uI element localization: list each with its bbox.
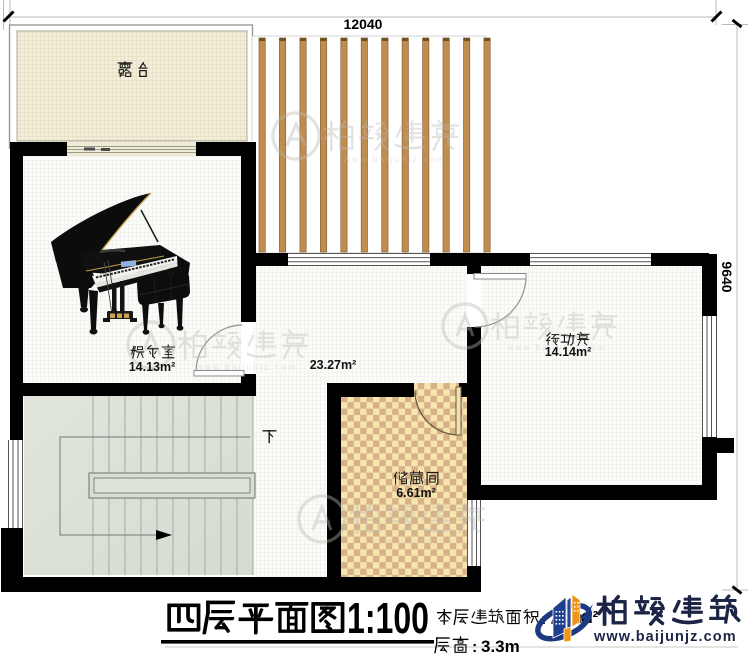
svg-text:www.baijunjz.com: www.baijunjz.com	[593, 629, 737, 645]
svg-text::: :	[472, 639, 477, 656]
svg-text:23.27m²: 23.27m²	[310, 358, 357, 372]
svg-text:14.14m²: 14.14m²	[545, 345, 592, 359]
svg-text:6.61m²: 6.61m²	[396, 486, 436, 500]
svg-text:14.13m²: 14.13m²	[129, 360, 176, 374]
svg-text:1:100: 1:100	[347, 594, 429, 643]
svg-text:www.baijunjz.com: www.baijunjz.com	[343, 155, 446, 164]
svg-text:9640: 9640	[719, 261, 735, 292]
svg-text:3.3m: 3.3m	[481, 637, 520, 656]
svg-text:www.baijunjz.com: www.baijunjz.com	[369, 537, 472, 546]
svg-text:12040: 12040	[344, 16, 383, 32]
svg-text:www.baijunjz.com: www.baijunjz.com	[196, 363, 297, 372]
